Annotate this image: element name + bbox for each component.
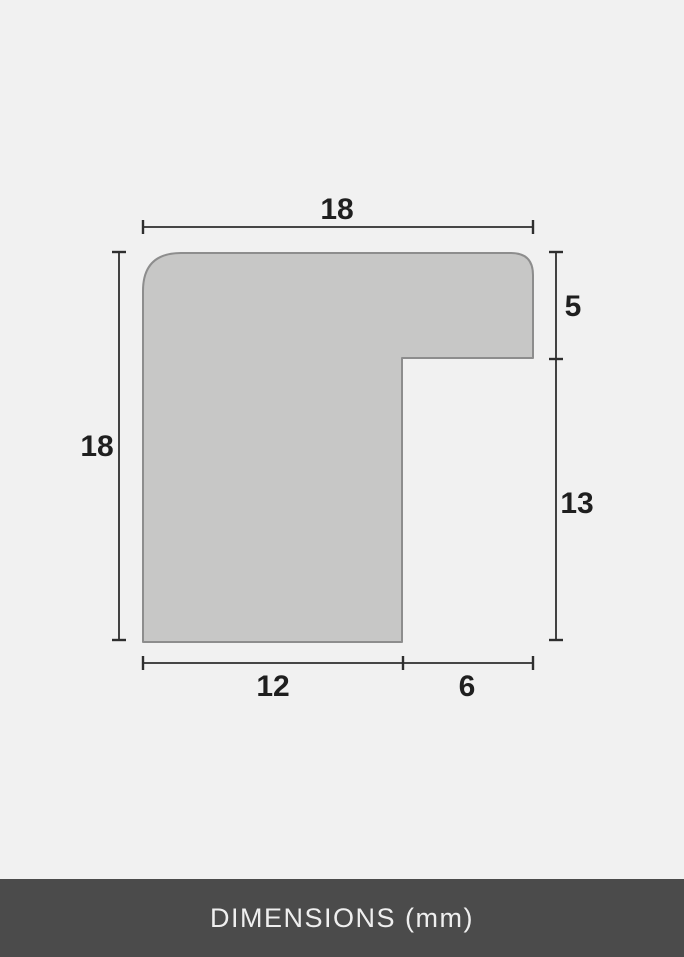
- screenshot-root: 18 18 5 13: [0, 0, 684, 957]
- dimension-label-bottom-left: 12: [256, 670, 289, 703]
- frame-profile-shape: [143, 253, 533, 642]
- dimension-right-side: 5 13: [549, 252, 594, 640]
- dimension-top-width: 18: [143, 193, 533, 234]
- dimension-left-height: 18: [80, 252, 126, 640]
- dimension-label-bottom-right: 6: [459, 670, 476, 703]
- dimension-label-right-upper: 5: [565, 290, 582, 323]
- footer-title: DIMENSIONS (mm): [210, 903, 474, 934]
- diagram-canvas: 18 18 5 13: [0, 0, 684, 879]
- profile-dimension-diagram: 18 18 5 13: [0, 0, 684, 879]
- dimension-label-left-height: 18: [80, 430, 113, 463]
- dimension-label-top-width: 18: [320, 193, 353, 226]
- dimension-label-right-lower: 13: [560, 487, 593, 520]
- footer-bar: DIMENSIONS (mm): [0, 879, 684, 957]
- dimension-bottom: 12 6: [143, 656, 533, 703]
